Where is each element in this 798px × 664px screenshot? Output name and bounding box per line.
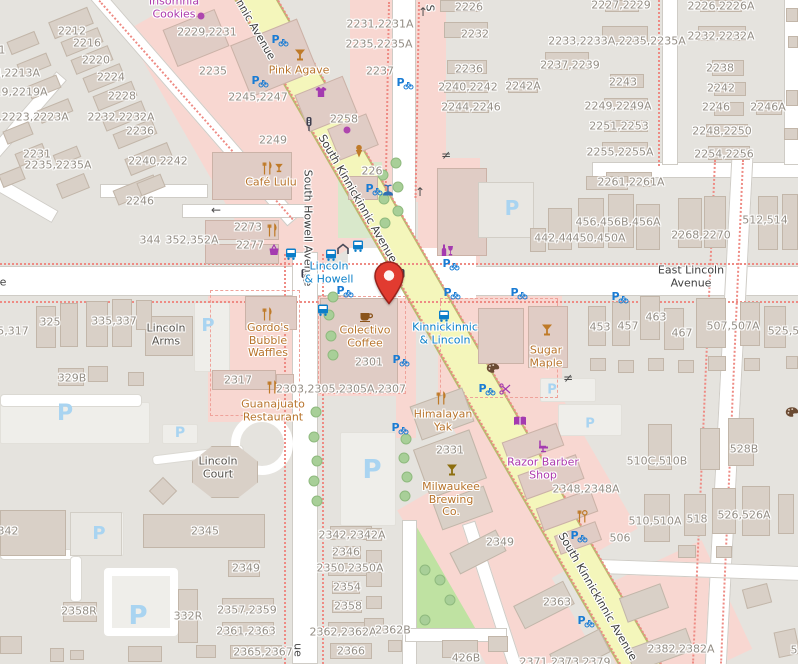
housenumber-label-2242: 2242 <box>707 83 735 96</box>
map-canvas[interactable]: PPPPPPPPPPPPPP≠≠←↑↑PPPPPPPPPEast Lincoln… <box>0 0 798 664</box>
housenumber-label-342: 342 <box>0 526 19 539</box>
building <box>778 494 794 534</box>
housenumber-label-2273: 2273 <box>234 222 262 235</box>
cafe-icon <box>359 310 373 322</box>
arrow-up-icon: ↑ <box>415 186 425 198</box>
housenumber-label-2358: 2358 <box>334 601 362 614</box>
building <box>128 646 162 662</box>
parking-lot-p-icon: P <box>547 384 557 397</box>
street-name-label-s: S <box>423 5 436 12</box>
housenumber-label-2331: 2331 <box>436 445 464 458</box>
pbike-icon: P <box>612 290 629 304</box>
tree-icon <box>399 453 410 464</box>
tree-icon <box>328 350 339 361</box>
tree-icon <box>393 206 404 217</box>
housenumber-label-2303-2305-2305a-2307: 2303,2305,2305A,2307 <box>276 384 406 397</box>
parking-lot-p-icon: P <box>585 418 595 431</box>
restaurant-icon <box>261 308 273 321</box>
map-pin[interactable] <box>374 261 404 309</box>
svg-text:P: P <box>392 421 400 434</box>
pbike-icon: P <box>252 74 269 88</box>
svg-text:P: P <box>443 257 451 270</box>
poi-label-gordo-s: Gordo's Bubble Waffles <box>247 322 289 360</box>
housenumber-label-1-2223-2223a: 1,2223,2223A <box>0 112 69 125</box>
building <box>742 583 772 609</box>
housenumber-label-19-2219a: 19,2219A <box>0 87 48 100</box>
pbike-icon: P <box>578 614 595 628</box>
building <box>388 640 402 652</box>
tree-icon <box>435 575 446 586</box>
pbike-icon: P <box>272 33 289 47</box>
building <box>786 356 798 369</box>
road <box>402 520 417 664</box>
housenumber-label-2254-2256: 2254,2256 <box>694 149 754 162</box>
building <box>478 308 524 364</box>
cocktail-icon <box>294 49 306 62</box>
housenumber-label-512-514: 512,514 <box>742 215 788 228</box>
housenumber-label-2371-2373-2379: 2371,2373,2379 <box>520 657 611 664</box>
building <box>708 356 726 371</box>
road <box>784 0 798 165</box>
housenumber-label-467: 467 <box>672 328 693 341</box>
building <box>128 372 144 386</box>
poi-label-pink-agave: Pink Agave <box>269 65 330 78</box>
housenumber-label-450-450a: 450,450A <box>572 233 625 246</box>
housenumber-label-2261-2261a: 2261,2261A <box>597 177 664 190</box>
building <box>786 8 798 22</box>
pbike-icon: P <box>397 76 414 90</box>
building <box>716 546 732 558</box>
poi-label-colectivo: Colectivo Coffee <box>340 324 391 349</box>
housenumber-label-510-510a: 510,510A <box>628 516 681 529</box>
housenumber-label-2232-2232a: 2232,2232A <box>687 31 754 44</box>
housenumber-label-506: 506 <box>610 533 631 546</box>
dot-icon <box>343 126 351 134</box>
building <box>2 121 33 144</box>
transit-stop-label-kinnickinnic: Kinnickinnic & Lincoln <box>412 321 478 346</box>
basket-icon <box>268 244 281 256</box>
housenumber-label-332r: 332R <box>174 611 203 624</box>
tshirt-icon <box>315 86 328 98</box>
housenumber-label-2349: 2349 <box>486 537 514 550</box>
tree-icon <box>420 615 431 626</box>
poi-label-milwaukee: Milwaukee Brewing Co. <box>422 481 480 519</box>
housenumber-label-2220: 2220 <box>82 55 110 68</box>
building <box>149 477 177 505</box>
housenumber-label-2237-2239: 2237,2239 <box>540 60 600 73</box>
pbike-icon: P <box>392 421 409 435</box>
housenumber-label-2233-2233a-2235-2235a: 2233,2233A,2235,2235A <box>548 36 686 49</box>
housenumber-label-2350-2350a: 2350,2350A <box>316 563 383 576</box>
svg-text:P: P <box>366 182 374 195</box>
parking-lot-p-icon: P <box>175 426 185 440</box>
housenumber-label-5: 5 <box>791 645 798 658</box>
building <box>744 358 760 371</box>
housenumber-label-518: 518 <box>687 514 708 527</box>
building <box>70 650 84 660</box>
building <box>788 36 798 48</box>
road <box>70 556 82 602</box>
housenumber-label-2244-2246: 2244,2246 <box>441 102 501 115</box>
traffic-icon <box>305 117 313 132</box>
parking-lot-p-icon: P <box>128 603 147 629</box>
housenumber-label-325: 325 <box>40 317 61 330</box>
housenumber-label-2232-2232a: 2232,2232A <box>87 112 154 125</box>
building <box>60 303 78 347</box>
housenumber-label-526-526a: 526,526A <box>717 510 770 523</box>
place-label-lincoln: Lincoln Court <box>199 455 238 480</box>
pbike-icon: P <box>393 353 410 367</box>
tree-icon <box>445 595 456 606</box>
svg-text:P: P <box>444 286 452 299</box>
housenumber-label-2362-2362a: 2362,2362A <box>309 627 376 640</box>
housenumber-label-2238: 2238 <box>706 63 734 76</box>
housenumber-label-426b: 426B <box>452 653 481 664</box>
building <box>618 360 634 373</box>
housenumber-label-2346: 2346 <box>332 547 360 560</box>
building <box>366 596 382 609</box>
housenumber-label-2237: 2237 <box>366 66 394 79</box>
housenumber-label-2268-2270: 2268,2270 <box>671 230 731 243</box>
building <box>56 173 90 199</box>
bar-icon <box>446 464 458 477</box>
housenumber-label-2235-2235a: 2235,2235A <box>345 39 412 52</box>
svg-text:P: P <box>337 284 345 297</box>
restaurant-icon <box>266 224 278 237</box>
cocktail-s-icon <box>275 163 284 173</box>
housenumber-label-2235-2235a: 2235,2235A <box>24 160 91 173</box>
housenumber-label-2232: 2232 <box>461 29 489 42</box>
housenumber-label-344: 344 <box>140 235 161 248</box>
transit-stop-label-lincoln: Lincoln & Howell <box>305 260 354 285</box>
building <box>196 645 216 658</box>
svg-text:P: P <box>397 76 405 89</box>
tree-icon <box>311 407 322 418</box>
tree-icon <box>391 158 402 169</box>
housenumber-label-2365-2367: 2365,2367 <box>233 647 293 660</box>
poi-label-sugar: Sugar Maple <box>529 344 562 369</box>
tree-icon <box>309 432 320 443</box>
housenumber-label-2229-2231: 2229,2231 <box>177 27 237 40</box>
building <box>488 636 508 652</box>
poi-label-himalayan: Himalayan Yak <box>414 408 473 433</box>
svg-text:P: P <box>578 614 586 627</box>
housenumber-label-2362b: 2362B <box>375 625 411 638</box>
housenumber-label-2236: 2236 <box>455 64 483 77</box>
housenumber-label-2249-2249a: 2249,2249A <box>584 101 651 114</box>
housenumber-label-453: 453 <box>590 322 611 335</box>
building <box>678 360 694 373</box>
housenumber-label-2255-2255a: 2255,2255A <box>586 147 653 160</box>
housenumber-label-2251-2253: 2251,2253 <box>589 121 649 134</box>
housenumber-label-2342-2342a: 2342,2342A <box>318 530 385 543</box>
housenumber-label-2349: 2349 <box>232 563 260 576</box>
bus-icon <box>285 248 298 261</box>
tree-icon <box>402 472 413 483</box>
housenumber-label-2228: 2228 <box>108 91 136 104</box>
icecream-icon <box>354 145 364 158</box>
hairdresser-icon <box>499 383 511 395</box>
svg-text:P: P <box>511 286 519 299</box>
housenumber-label-2358r: 2358R <box>61 606 97 619</box>
housenumber-label-2246a: 2246A <box>750 102 786 115</box>
housenumber-label-2361-2363: 2361,2363 <box>216 626 276 639</box>
housenumber-label-463: 463 <box>646 312 667 325</box>
housenumber-label-510c-510b: 510C,510B <box>627 456 688 469</box>
svg-text:P: P <box>252 74 260 87</box>
housenumber-label-2366: 2366 <box>337 646 365 659</box>
tree-icon <box>312 496 323 507</box>
wine-icon <box>440 243 454 257</box>
housenumber-label-2258: 2258 <box>330 114 358 127</box>
housenumber-label-5-317: 5,317 <box>0 326 29 339</box>
housenumber-label-2246: 2246 <box>126 196 154 209</box>
tree-icon <box>326 331 337 342</box>
housenumber-label-2317: 2317 <box>224 375 252 388</box>
housenumber-label-2354: 2354 <box>333 582 361 595</box>
svg-text:P: P <box>479 382 487 395</box>
parking-lot-p-icon: P <box>362 457 381 483</box>
poi-label-insomnia: Insomnia Cookies <box>149 0 199 21</box>
building <box>784 128 798 140</box>
housenumber-label-2226: 2226 <box>455 2 483 15</box>
housenumber-label-2236: 2236 <box>126 126 154 139</box>
street-name-label-east-lincoln-avenue: East Lincoln Avenue <box>638 264 745 289</box>
poi-label-razor-barber: Razor Barber Shop <box>507 456 579 481</box>
restaurant-icon <box>435 392 447 405</box>
parking-lot-p-icon: P <box>92 525 105 543</box>
building <box>590 358 606 371</box>
parking-area <box>0 402 150 444</box>
pbike-icon: P <box>511 286 528 300</box>
housenumber-label-2245-2247: 2245,2247 <box>228 92 288 105</box>
housenumber-label-457: 457 <box>618 321 639 334</box>
road <box>662 0 678 165</box>
housenumber-label-2231-2231a: 2231,2231A <box>346 19 413 32</box>
housenumber-label-2363: 2363 <box>543 597 571 610</box>
cocktail-icon <box>541 324 553 337</box>
street-name-label-e: e <box>0 277 6 290</box>
tree-icon <box>400 491 411 502</box>
fountain-icon <box>381 184 395 197</box>
tree-icon <box>420 565 431 576</box>
housenumber-label-2248-2250: 2248,2250 <box>692 126 752 139</box>
building <box>6 31 39 55</box>
pbike-icon: P <box>337 284 354 298</box>
housenumber-label-2240-2242: 2240,2242 <box>438 82 498 95</box>
tree-icon <box>312 456 323 467</box>
pbike-icon: P <box>479 382 496 396</box>
housenumber-label-2240-2242: 2240,2242 <box>128 156 188 169</box>
road-dashes <box>658 0 660 166</box>
bus-icon <box>352 240 365 253</box>
book-icon <box>513 416 527 427</box>
building <box>786 90 798 106</box>
parking-lot-p-icon: P <box>57 403 73 425</box>
pbike-icon: P <box>444 286 461 300</box>
housenumber-label-2235: 2235 <box>199 66 227 79</box>
housenumber-label-2242a: 2242A <box>505 81 541 94</box>
parking-lot-p-icon: P <box>505 198 520 218</box>
housenumber-label-2348-2348a: 2348,2348A <box>552 484 619 497</box>
housenumber-label-525-52: 525,52 <box>768 326 798 339</box>
housenumber-label-329b: 329B <box>58 373 87 386</box>
housenumber-label-2246: 2246 <box>702 102 730 115</box>
building <box>88 366 108 382</box>
housenumber-label-335-337: 335,337 <box>91 316 137 329</box>
building <box>678 545 696 558</box>
pbike-icon: P <box>443 257 460 271</box>
building <box>648 358 664 371</box>
barber-icon <box>538 440 550 453</box>
housenumber-label-226: 226 <box>362 166 383 179</box>
housenumber-label-2301: 2301 <box>355 357 383 370</box>
fastfood-icon <box>576 510 588 523</box>
poi-label-caf-lulu: Café Lulu <box>245 177 297 190</box>
building <box>0 636 22 654</box>
housenumber-label-2345: 2345 <box>191 526 219 539</box>
housenumber-label-2216: 2216 <box>73 38 101 51</box>
housenumber-label-2249: 2249 <box>259 135 287 148</box>
housenumber-label-2226-2226a: 2226,2226A <box>687 1 754 14</box>
shelter-icon <box>337 243 350 255</box>
parking-lot-p-icon: P <box>201 317 214 335</box>
housenumber-label-507-507a: 507,507A <box>706 321 759 334</box>
svg-text:P: P <box>272 33 280 46</box>
housenumber-label-352-352a: 352,352A <box>165 235 218 248</box>
svg-text:P: P <box>393 353 401 366</box>
housenumber-label-528b: 528B <box>730 444 759 457</box>
poi-label-guanajuato: Guanajuato Restaurant <box>241 398 305 423</box>
bus-icon <box>317 304 330 317</box>
housenumber-label-2277: 2277 <box>236 240 264 253</box>
housenumber-label-2382-2382a: 2382,2382A <box>647 644 714 657</box>
housenumber-label-456-456b-456a: 456,456B,456A <box>575 217 660 230</box>
pbike-icon: P <box>366 182 383 196</box>
housenumber-label-3-2213a: 3,2213A <box>0 68 40 81</box>
arrow-left-icon: ← <box>211 204 221 216</box>
svg-text:P: P <box>612 290 620 303</box>
building <box>700 428 720 470</box>
housenumber-label-1: 1 <box>0 45 6 58</box>
tree-icon <box>309 476 320 487</box>
palette-icon <box>785 407 798 418</box>
palette-icon <box>486 363 500 374</box>
place-label-lincoln: Lincoln Arms <box>147 322 186 347</box>
restaurant-icon <box>261 162 273 175</box>
tree-icon <box>401 434 412 445</box>
housenumber-label-2227-2229: 2227,2229 <box>591 0 651 12</box>
building <box>50 648 64 662</box>
housenumber-label-2224: 2224 <box>97 72 125 85</box>
gate-icon: ≠ <box>441 149 451 161</box>
housenumber-label-2243: 2243 <box>609 77 637 90</box>
housenumber-label-2357-2359: 2357,2359 <box>217 605 277 618</box>
gate-icon: ≠ <box>563 372 573 384</box>
